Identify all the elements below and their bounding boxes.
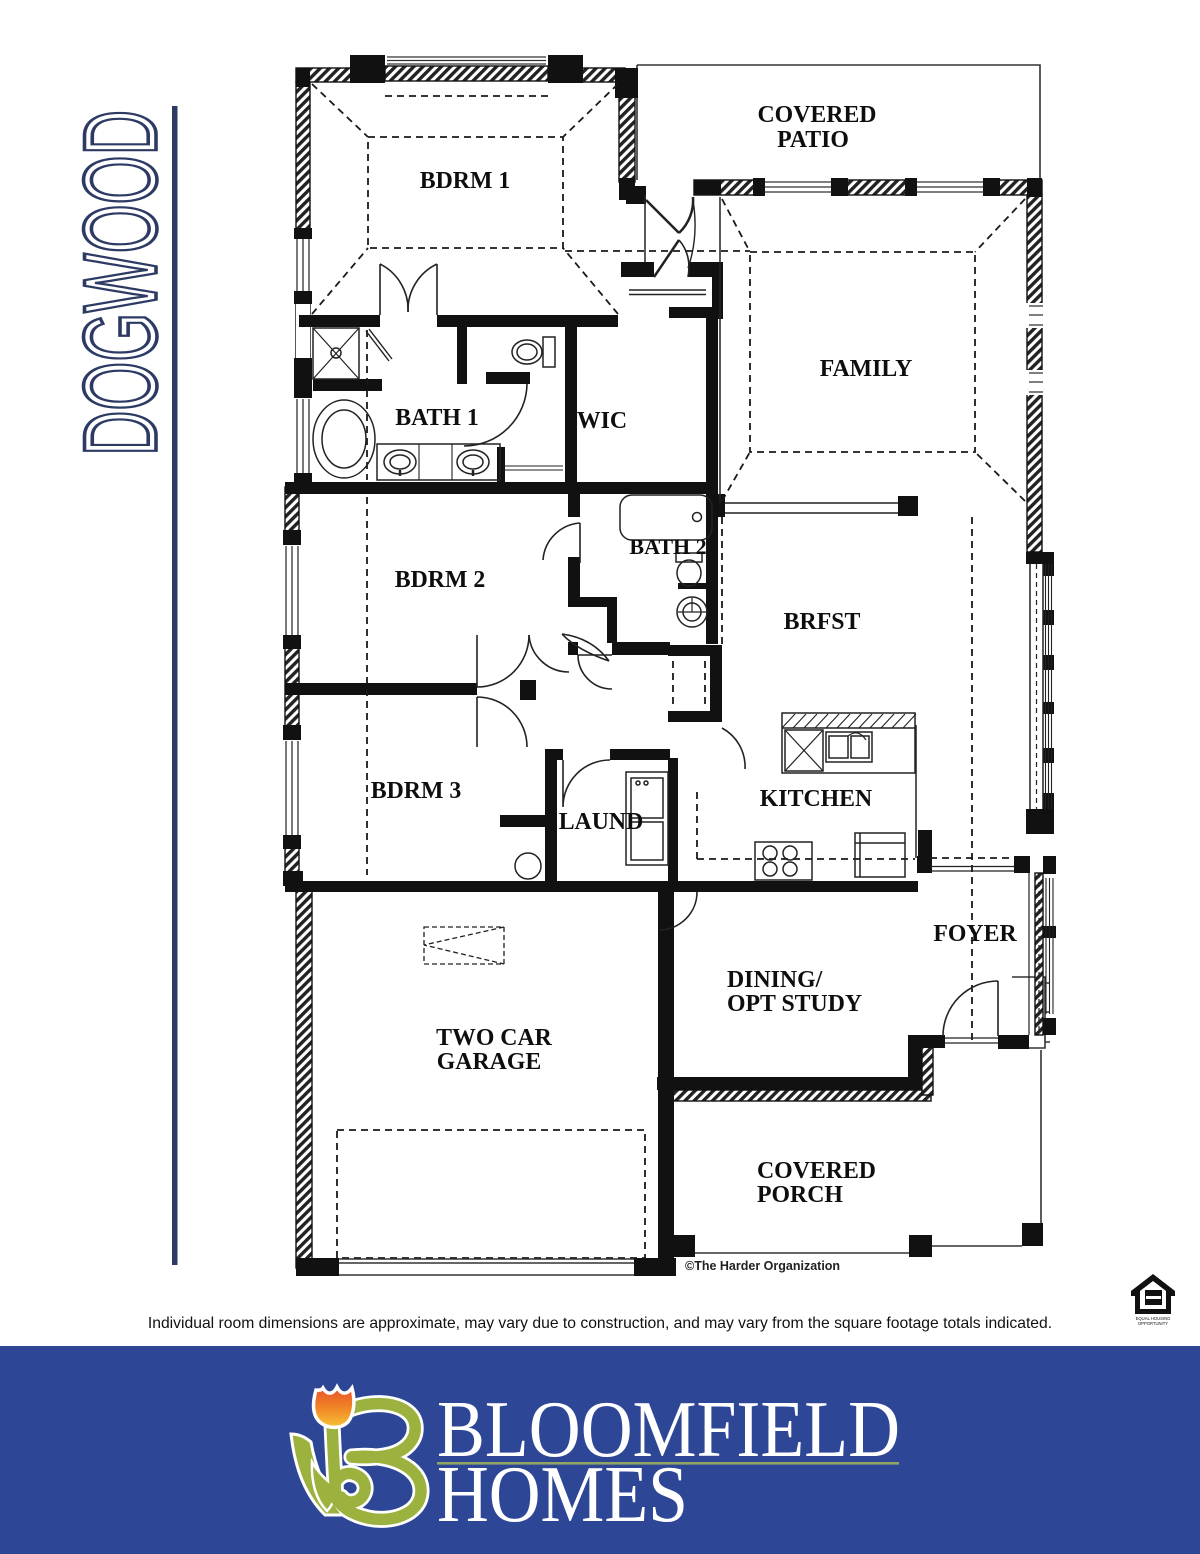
svg-text:DINING/: DINING/ <box>727 967 823 993</box>
svg-text:FOYER: FOYER <box>933 921 1017 947</box>
svg-text:WIC: WIC <box>577 408 627 434</box>
svg-text:COVERED: COVERED <box>757 1158 876 1184</box>
svg-text:Individual room dimensions are: Individual room dimensions are approxima… <box>148 1315 1052 1332</box>
svg-text:BDRM 1: BDRM 1 <box>420 168 511 194</box>
svg-text:PATIO: PATIO <box>777 127 849 153</box>
svg-text:BATH 1: BATH 1 <box>395 405 479 431</box>
svg-text:TWO CAR: TWO CAR <box>436 1025 552 1051</box>
svg-text:LAUND: LAUND <box>559 809 644 835</box>
svg-text:OPT STUDY: OPT STUDY <box>727 991 862 1017</box>
svg-text:BDRM 2: BDRM 2 <box>395 567 486 593</box>
svg-text:GARAGE: GARAGE <box>437 1049 541 1075</box>
svg-text:KITCHEN: KITCHEN <box>760 786 872 812</box>
svg-text:BRFST: BRFST <box>784 609 861 635</box>
svg-text:BDRM 3: BDRM 3 <box>371 778 462 804</box>
svg-text:BATH 2: BATH 2 <box>629 534 706 559</box>
svg-text:PORCH: PORCH <box>757 1182 843 1208</box>
svg-text:HOMES: HOMES <box>437 1451 688 1539</box>
svg-text:DOGWOOD: DOGWOOD <box>63 110 179 456</box>
svg-text:FAMILY: FAMILY <box>820 356 913 382</box>
svg-text:COVERED: COVERED <box>758 102 877 128</box>
svg-text:OPPORTUNITY: OPPORTUNITY <box>1138 1321 1168 1326</box>
svg-text:©The Harder Organization: ©The Harder Organization <box>685 1259 840 1273</box>
